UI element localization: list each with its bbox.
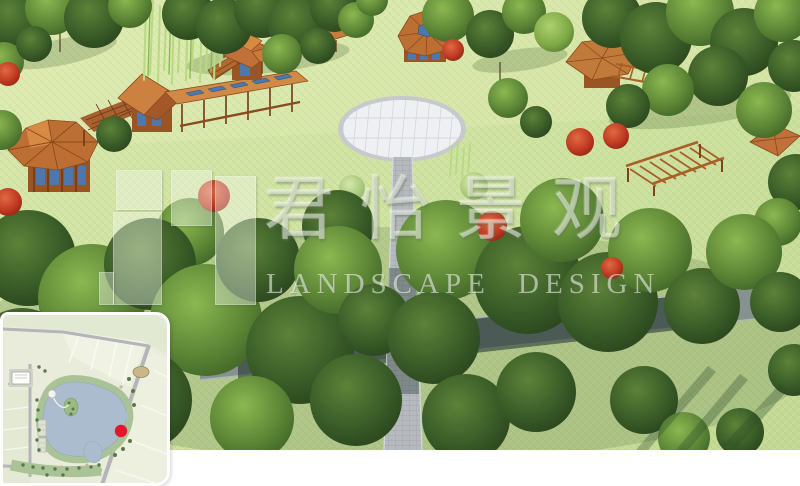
map-parking — [38, 420, 46, 452]
map-building — [9, 369, 33, 387]
site-plan-inset-map — [0, 312, 170, 486]
site-plan-graphic — [3, 315, 167, 483]
landscape-render-page: 君怡景观 LANDSCAPE DESIGN — [0, 0, 800, 486]
location-marker — [115, 425, 127, 437]
map-stadium — [133, 367, 149, 378]
